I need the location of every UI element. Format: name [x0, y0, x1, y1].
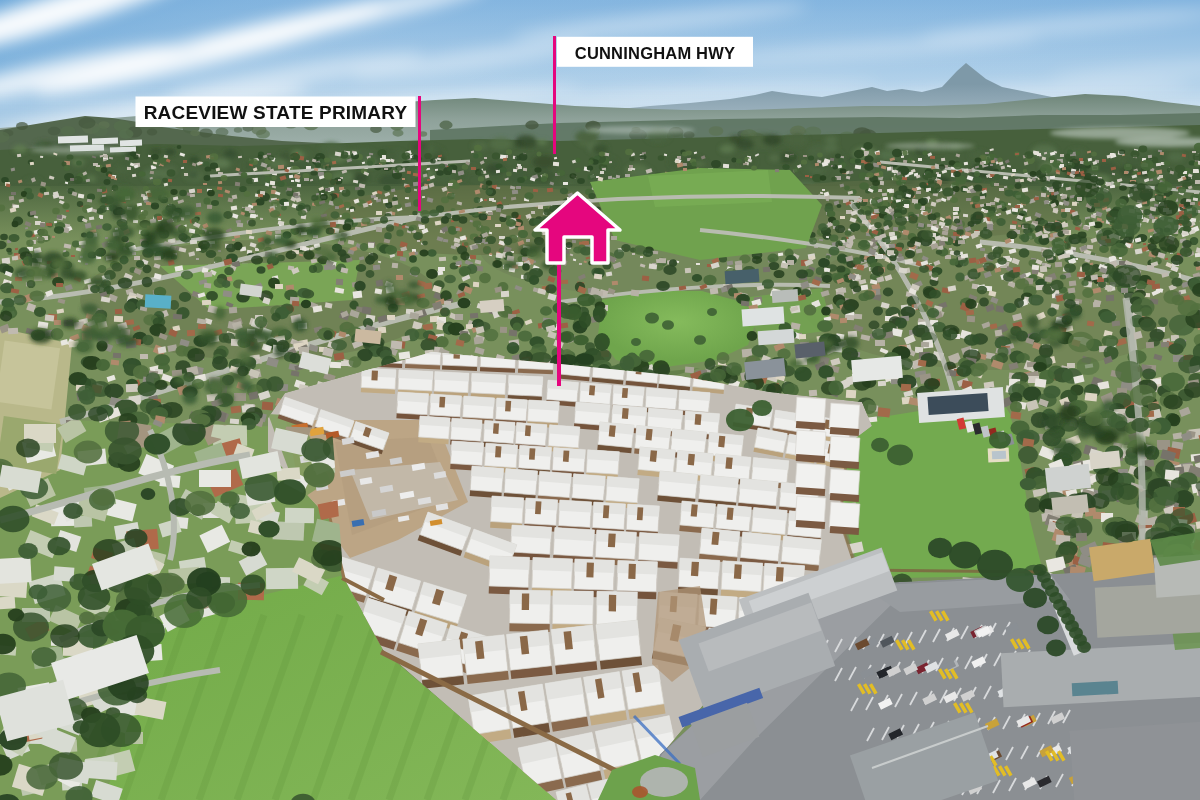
svg-text:RACEVIEW STATE PRIMARY: RACEVIEW STATE PRIMARY — [144, 102, 408, 123]
svg-text:CUNNINGHAM HWY: CUNNINGHAM HWY — [575, 44, 735, 62]
